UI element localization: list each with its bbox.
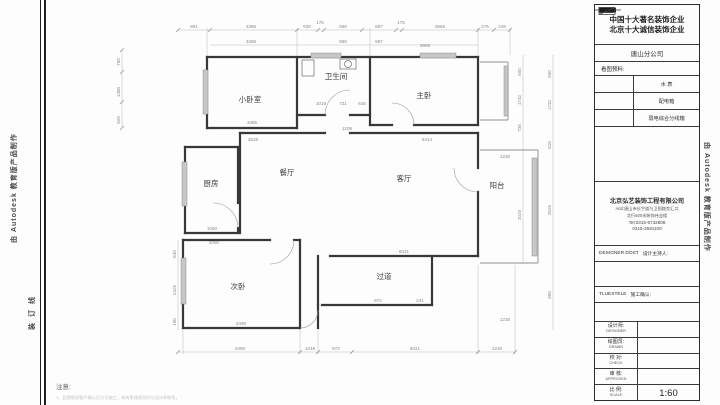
dim-label: 3490 (235, 346, 246, 351)
check-value (638, 354, 699, 369)
legend-header: 看图预料: (595, 62, 699, 76)
construction-confirm-signature-area (595, 303, 699, 322)
dim-label: 3490 (236, 321, 247, 326)
designer-value (638, 322, 699, 337)
dim-label: 1732 (547, 99, 552, 110)
approved-row: 审 核: APPROVED (595, 369, 699, 385)
drawing-sheet: 由 Autodesk 教育版产品制作 装订线 由 Autodesk 教育版产品制… (0, 0, 720, 405)
check-label-en: CHECK (609, 361, 622, 366)
company-name: 北京弘艺装饰工程有限公司 (610, 196, 684, 205)
distribution-box-icon (595, 93, 634, 109)
dim-label: 175 (316, 20, 324, 25)
approved-label-en: APPROVED (605, 377, 626, 382)
approved-value (638, 369, 699, 384)
dim-label: 640 (172, 250, 177, 258)
scale-value: 1:60 (638, 385, 699, 401)
dim-label: 1480 (116, 86, 121, 97)
dim-label: 1060 (207, 226, 218, 231)
water-meter-icon (595, 76, 634, 92)
dim-label: 1230 (492, 346, 503, 351)
window-symbols (181, 53, 537, 304)
dim-label: 1230 (500, 317, 511, 322)
note-label: 注意: (56, 381, 71, 391)
dim-label: 1230 (500, 154, 511, 159)
room-label-living: 客厅 (397, 173, 412, 183)
drawn-value (638, 338, 699, 353)
scale-row: 比 例: SCALE 1:60 (595, 385, 699, 401)
construction-confirm-row: TLUESTELE 施工确认: (595, 287, 699, 303)
designer-host-en: DESIGNER DOST (599, 251, 639, 256)
room-labels: 小卧室 卫生间 主卧 厨房 餐厅 客厅 阳台 次卧 过道 (204, 71, 505, 291)
designer-host-zh: 设计主持人: (643, 250, 668, 257)
dim-label: 2090 (209, 240, 220, 245)
dim-label: 248 (498, 24, 506, 29)
dim-label: 818 (547, 141, 552, 149)
dim-label: 648 (358, 101, 366, 106)
room-label-balcony: 阳台 (490, 180, 505, 190)
title-block: 中国十大著名装饰企业 北京十大诚信装饰企业 唐山分公司 看图预料: 水 表 (594, 4, 700, 401)
room-label-master-bedroom: 主卧 (417, 90, 432, 100)
room-label-kitchen: 厨房 (204, 178, 219, 188)
legend-row-water-meter: 水 表 (595, 76, 699, 93)
dim-label: 972 (332, 346, 340, 351)
company-tel-2: 0315-2591100 (632, 226, 661, 231)
dim-label: 500 (517, 68, 522, 76)
dim-label: 738 (517, 124, 522, 132)
dim-label: 3966 (435, 24, 446, 29)
dim-label: 968 (339, 24, 347, 29)
legend-row-distribution-box: 配电箱 (595, 93, 699, 110)
dim-label: 1248 (305, 346, 316, 351)
dim-label: 2525 (547, 204, 552, 215)
room-label-bathroom: 卫生间 (325, 71, 348, 81)
dim-label: 731 (339, 101, 347, 106)
legend-label: 水 表 (634, 76, 699, 92)
dim-label: 920 (116, 116, 121, 124)
legend-row-weak-current-box: 弱电综合分线箱 (595, 110, 699, 127)
branch-name: 唐山分公司 (595, 45, 699, 62)
legend-label: 配电箱 (634, 93, 699, 109)
construction-confirm-en: TLUESTELE (599, 292, 626, 297)
dim-label: 780 (116, 58, 121, 66)
check-row: 校 对: CHECK (595, 354, 699, 370)
dim-label: 1732 (517, 94, 522, 105)
company-tel-1: Tel:0315-6732808 (629, 220, 666, 225)
dim-label: 190 (172, 318, 177, 326)
designer-host-row: DESIGNER DOST 设计主持人: (595, 246, 699, 262)
dim-label: 887 (375, 24, 383, 29)
dim-label: 887 (375, 39, 383, 44)
dim-label: 938 (303, 24, 311, 29)
company-address-1: Add:唐山市长宁道与卫国路交汇口 (615, 206, 678, 212)
dim-label: 6021 (399, 249, 410, 254)
dim-label: 3966 (420, 43, 431, 48)
dim-label: 950 (547, 291, 552, 299)
title-block-blank-area (595, 127, 699, 182)
designer-row: 设计师: DESIGNER (595, 322, 699, 338)
note-text: 1、此图纸经客户确认后方可施工，如有更改请及时与设计师联系。 (56, 395, 180, 401)
designer-label-en: DESIGNER (606, 329, 626, 334)
room-label-second-bedroom: 次卧 (231, 281, 246, 291)
dim-label: 872 (374, 298, 382, 303)
dim-label: 500 (547, 70, 552, 78)
scale-label-en: SCALE (610, 393, 622, 398)
dim-label: 3386 (246, 39, 257, 44)
designer-host-signature-area (595, 262, 699, 287)
dim-label: 3386 (246, 24, 257, 29)
dim-label: 1209 (342, 126, 353, 131)
drawn-label-en: DRAWN (609, 345, 623, 350)
dim-label: 981 (190, 24, 198, 29)
dim-label: 5414 (422, 137, 433, 142)
room-label-dining: 餐厅 (280, 168, 295, 177)
dim-label: 2025 (517, 209, 522, 220)
dim-label: 275 (481, 24, 489, 29)
company-address-2: 北行500米装饰伟业楼 (627, 213, 668, 219)
dim-label: 241 (416, 298, 424, 303)
dim-label: 1019 (316, 101, 327, 106)
dim-label: 968 (339, 39, 347, 44)
company-info: 北京弘艺装饰工程有限公司 Add:唐山市长宁道与卫国路交汇口 北行500米装饰伟… (595, 182, 699, 246)
legend-label: 弱电综合分线箱 (634, 110, 699, 126)
dim-label: 2425 (172, 284, 177, 295)
dim-label: 175 (397, 20, 405, 25)
room-label-small-bedroom: 小卧室 (239, 94, 262, 104)
dim-label: 6021 (410, 346, 421, 351)
dim-label: 3528 (248, 137, 259, 142)
dim-label: 3385 (247, 120, 258, 125)
construction-confirm-zh: 施工确认: (630, 291, 651, 298)
room-label-hallway: 过道 (377, 271, 392, 281)
slogan-line-2: 北京十大诚信装饰企业 (610, 25, 685, 35)
weak-current-box-icon (595, 110, 634, 126)
drawn-row: 绘图员: DRAWN (595, 338, 699, 354)
